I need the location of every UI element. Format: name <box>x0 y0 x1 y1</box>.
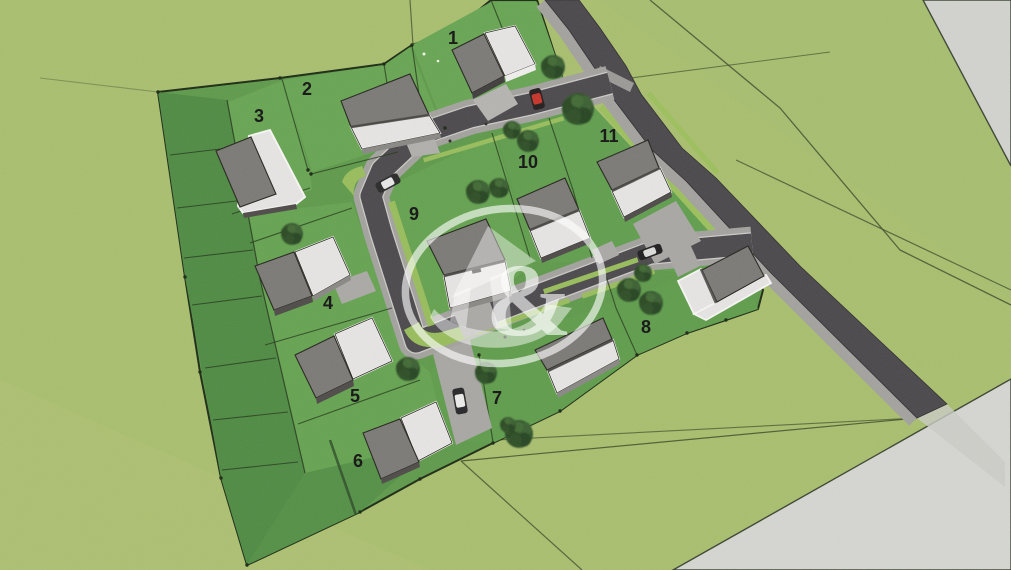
svg-text:&: & <box>486 243 573 358</box>
